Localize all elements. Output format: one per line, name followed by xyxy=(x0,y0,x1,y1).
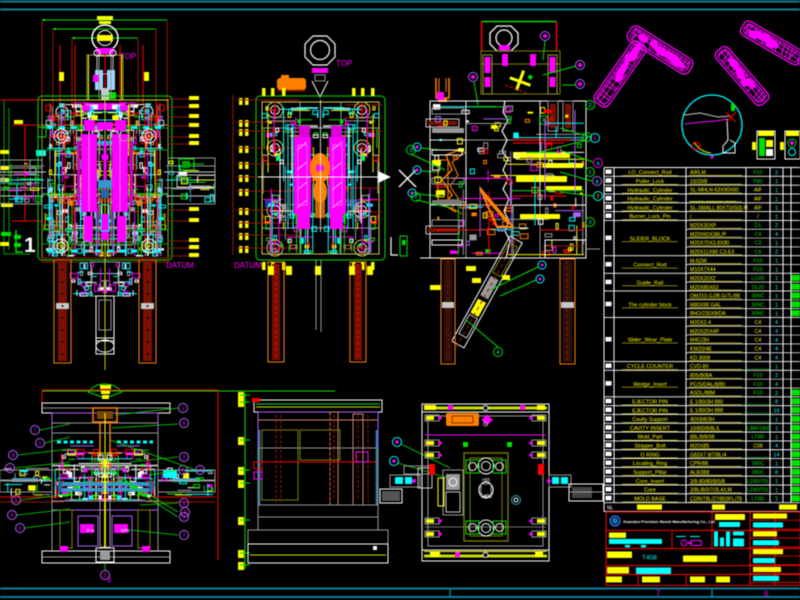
svg-text:2: 2 xyxy=(8,466,11,472)
svg-text:Stripper_Bolt: Stripper_Bolt xyxy=(634,444,666,450)
svg-text:F10: F10 xyxy=(754,170,763,176)
svg-text:1: 1 xyxy=(775,364,778,370)
svg-text:1: 1 xyxy=(775,214,778,220)
svg-text:2: 2 xyxy=(775,223,778,229)
svg-text:P-A: P-A xyxy=(87,528,95,533)
svg-text:EJECTOR PIN: EJECTOR PIN xyxy=(632,408,668,414)
svg-text:3: 3 xyxy=(588,220,591,226)
svg-text:1: 1 xyxy=(775,188,778,194)
svg-text:30NC: 30NC xyxy=(751,294,765,300)
svg-text:8: 8 xyxy=(542,118,545,124)
svg-text:F80: F80 xyxy=(754,179,763,185)
svg-text:ABS: ABS xyxy=(482,477,491,482)
svg-text:Guandun Precision Mould Manufa: Guandun Precision Mould Manufacturing Co… xyxy=(623,519,716,524)
svg-text:1: 1 xyxy=(775,311,778,317)
svg-text:2: 2 xyxy=(775,170,778,176)
svg-text:1: 1 xyxy=(24,234,36,257)
svg-text:4: 4 xyxy=(496,350,499,356)
svg-text:2: 2 xyxy=(775,373,778,379)
svg-text:Puller_Lock: Puller_Lock xyxy=(636,179,664,185)
svg-text:Slider_Wear_Plate: Slider_Wear_Plate xyxy=(628,338,673,344)
svg-text:F10: F10 xyxy=(754,258,763,264)
svg-text:14: 14 xyxy=(773,453,779,459)
svg-text:G: G xyxy=(613,519,618,525)
svg-text:380C: 380C xyxy=(752,461,765,467)
svg-text:1: 1 xyxy=(588,170,591,176)
svg-text:Locating_Ring: Locating_Ring xyxy=(633,461,667,467)
svg-text:LC#D: LC#D xyxy=(751,276,765,282)
svg-text:LO_Connect_Rod: LO_Connect_Rod xyxy=(628,170,671,176)
svg-text:30NC: 30NC xyxy=(751,311,765,317)
svg-text:8: 8 xyxy=(775,400,778,406)
svg-text:Core_Insert: Core_Insert xyxy=(636,479,665,485)
svg-text:4: 4 xyxy=(775,356,778,362)
svg-text:380C: 380C xyxy=(752,470,765,476)
svg-text:DATUM: DATUM xyxy=(234,261,262,270)
svg-text:4: 4 xyxy=(775,329,778,335)
svg-text:4: 4 xyxy=(775,232,778,238)
svg-text:6: 6 xyxy=(764,590,769,599)
svg-text:6: 6 xyxy=(182,421,185,427)
svg-text:1: 1 xyxy=(775,435,778,441)
svg-text:DL20: DL20 xyxy=(752,285,765,291)
svg-text:LT/80: LT/80 xyxy=(752,496,765,502)
svg-text:AIF: AIF xyxy=(754,188,762,194)
svg-text:1: 1 xyxy=(775,179,778,185)
svg-text:5: 5 xyxy=(14,498,17,504)
svg-text:F10: F10 xyxy=(754,382,763,388)
svg-text:1: 1 xyxy=(775,206,778,212)
svg-text:4: 4 xyxy=(775,444,778,450)
svg-text:8: 8 xyxy=(775,470,778,476)
svg-text:TOP: TOP xyxy=(120,52,136,61)
svg-text:9: 9 xyxy=(181,468,184,474)
svg-text:8: 8 xyxy=(11,453,14,459)
svg-text:2: 2 xyxy=(775,250,778,256)
svg-text:MOLD BASE: MOLD BASE xyxy=(634,496,666,502)
svg-text:EJECTOR PIN: EJECTOR PIN xyxy=(632,399,668,405)
svg-text:2: 2 xyxy=(775,391,778,397)
svg-text:1: 1 xyxy=(775,303,778,309)
svg-text:7: 7 xyxy=(33,428,36,434)
svg-text:F10: F10 xyxy=(754,391,763,397)
svg-text:7: 7 xyxy=(656,589,661,598)
svg-text:C4: C4 xyxy=(755,232,762,238)
svg-text:1: 1 xyxy=(775,259,778,265)
svg-text:L280/701: L280/701 xyxy=(747,479,769,485)
svg-text:F10: F10 xyxy=(754,373,763,379)
svg-text:CAVITY INSERT: CAVITY INSERT xyxy=(630,426,671,432)
svg-text:1: 1 xyxy=(775,488,778,494)
svg-text:Hydraulic_Cylinder: Hydraulic_Cylinder xyxy=(627,188,672,194)
svg-text:1: 1 xyxy=(775,294,778,300)
svg-text:C3: C3 xyxy=(755,241,762,247)
svg-text:18: 18 xyxy=(773,408,779,414)
svg-text:1: 1 xyxy=(775,497,778,503)
svg-text:9: 9 xyxy=(10,513,13,519)
svg-text:O RING: O RING xyxy=(640,452,659,458)
svg-text:AIF: AIF xyxy=(754,197,762,203)
svg-text:C08: C08 xyxy=(753,444,763,450)
svg-text:TOP: TOP xyxy=(336,59,352,68)
svg-text:5: 5 xyxy=(593,137,596,143)
svg-text:__________: __________ xyxy=(743,399,773,405)
svg-text:Hydraulic_Cylinder: Hydraulic_Cylinder xyxy=(627,205,672,211)
svg-text:The cylinder block: The cylinder block xyxy=(628,302,672,308)
svg-text:1: 1 xyxy=(775,197,778,203)
svg-text:7: 7 xyxy=(182,533,185,539)
svg-text:F10: F10 xyxy=(754,267,763,273)
svg-text:L280/701: L280/701 xyxy=(747,488,769,494)
svg-text:7: 7 xyxy=(596,195,599,201)
svg-text:3: 3 xyxy=(409,148,412,154)
svg-text:1: 1 xyxy=(775,267,778,273)
svg-text:9: 9 xyxy=(596,162,599,168)
svg-text:g: g xyxy=(107,576,111,583)
svg-text:CYCLE COUNTER: CYCLE COUNTER xyxy=(627,364,673,370)
svg-text:1: 1 xyxy=(775,417,778,423)
svg-text:4: 4 xyxy=(775,338,778,344)
svg-text:Support_Pillar: Support_Pillar xyxy=(633,470,667,476)
svg-text:C4: C4 xyxy=(755,329,762,335)
svg-text:8: 8 xyxy=(595,180,598,186)
svg-text:Burner_Lock_Pin: Burner_Lock_Pin xyxy=(629,214,670,220)
svg-text:_________: _________ xyxy=(744,452,771,458)
svg-text:1: 1 xyxy=(38,441,41,447)
svg-text:Core: Core xyxy=(644,488,656,494)
svg-text:5: 5 xyxy=(182,515,185,521)
svg-text:SLIDER_BLOCK: SLIDER_BLOCK xyxy=(630,236,671,242)
svg-text:KP8: KP8 xyxy=(121,528,130,533)
svg-text:2: 2 xyxy=(588,103,591,109)
svg-text:Mold_Part: Mold_Part xyxy=(638,435,663,441)
svg-text:Cavity Support: Cavity Support xyxy=(632,417,668,423)
svg-text:1.88F1808: 1.88F1808 xyxy=(746,426,771,432)
svg-text:4: 4 xyxy=(775,347,778,353)
svg-text:Connect_Rod: Connect_Rod xyxy=(634,263,667,269)
svg-text:4: 4 xyxy=(198,468,201,474)
svg-text:Guide_Rail: Guide_Rail xyxy=(637,280,664,286)
svg-text:1: 1 xyxy=(775,241,778,247)
svg-text:_________: _________ xyxy=(744,364,771,370)
svg-text:Wedge_Insert: Wedge_Insert xyxy=(633,382,667,388)
svg-text:AIF: AIF xyxy=(754,205,762,211)
svg-text:D1: D1 xyxy=(755,223,762,229)
svg-text:4: 4 xyxy=(775,382,778,388)
svg-text:30NC: 30NC xyxy=(751,302,765,308)
svg-text:_________: _________ xyxy=(744,417,771,423)
svg-text:C4: C4 xyxy=(755,320,762,326)
svg-text:3: 3 xyxy=(18,526,21,532)
svg-text:LT/80: LT/80 xyxy=(752,435,765,441)
svg-text:1: 1 xyxy=(181,406,184,412)
svg-text:2: 2 xyxy=(182,455,185,461)
svg-text:8: 8 xyxy=(182,501,185,507)
svg-text:1: 1 xyxy=(775,479,778,485)
svg-text:1: 1 xyxy=(775,285,778,291)
svg-text:Hydraulic_Cylinder: Hydraulic_Cylinder xyxy=(627,197,672,203)
svg-text:4: 4 xyxy=(775,320,778,326)
svg-text:T408: T408 xyxy=(480,494,492,500)
svg-text:1: 1 xyxy=(775,461,778,467)
svg-text:__________: __________ xyxy=(743,408,773,414)
svg-text:DATUM: DATUM xyxy=(166,261,194,270)
svg-text:C4: C4 xyxy=(755,249,762,255)
svg-text:1: 1 xyxy=(775,276,778,282)
svg-text:C4: C4 xyxy=(755,355,762,361)
svg-text:T408: T408 xyxy=(642,554,657,561)
svg-text:1: 1 xyxy=(775,426,778,432)
svg-text:C4: C4 xyxy=(755,338,762,344)
svg-text:NL: NL xyxy=(607,506,614,512)
svg-text:C4: C4 xyxy=(755,347,762,353)
